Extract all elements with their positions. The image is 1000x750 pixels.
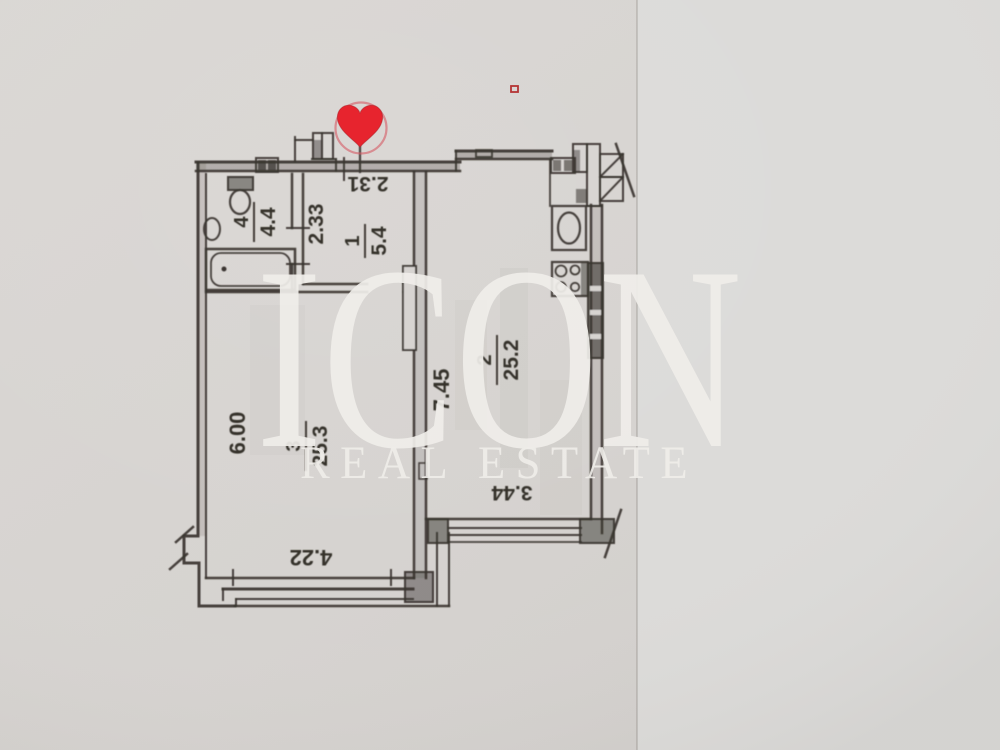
floor-plan-photo: 4 4.4 2.33 2.31 1 5.4 7.45 2 25.2 [0, 0, 1000, 750]
dim-hall-width: 2.31 [347, 172, 388, 195]
window-pier [580, 519, 614, 543]
dim-bedroom-width: 4.22 [290, 545, 333, 570]
svg-text:4.22: 4.22 [290, 545, 333, 570]
watermark-tagline: REAL ESTATE [300, 437, 698, 489]
entrance-marker [336, 103, 387, 154]
room-number: 4 [231, 216, 253, 228]
svg-text:6.00: 6.00 [225, 412, 250, 455]
window-pier [405, 572, 433, 602]
watermark: ICON REAL ESTATE [256, 213, 742, 503]
svg-text:2.31: 2.31 [347, 172, 388, 195]
dim-bedroom-length: 6.00 [225, 412, 250, 455]
floor-plan-canvas: 4 4.4 2.33 2.31 1 5.4 7.45 2 25.2 [0, 0, 1000, 750]
